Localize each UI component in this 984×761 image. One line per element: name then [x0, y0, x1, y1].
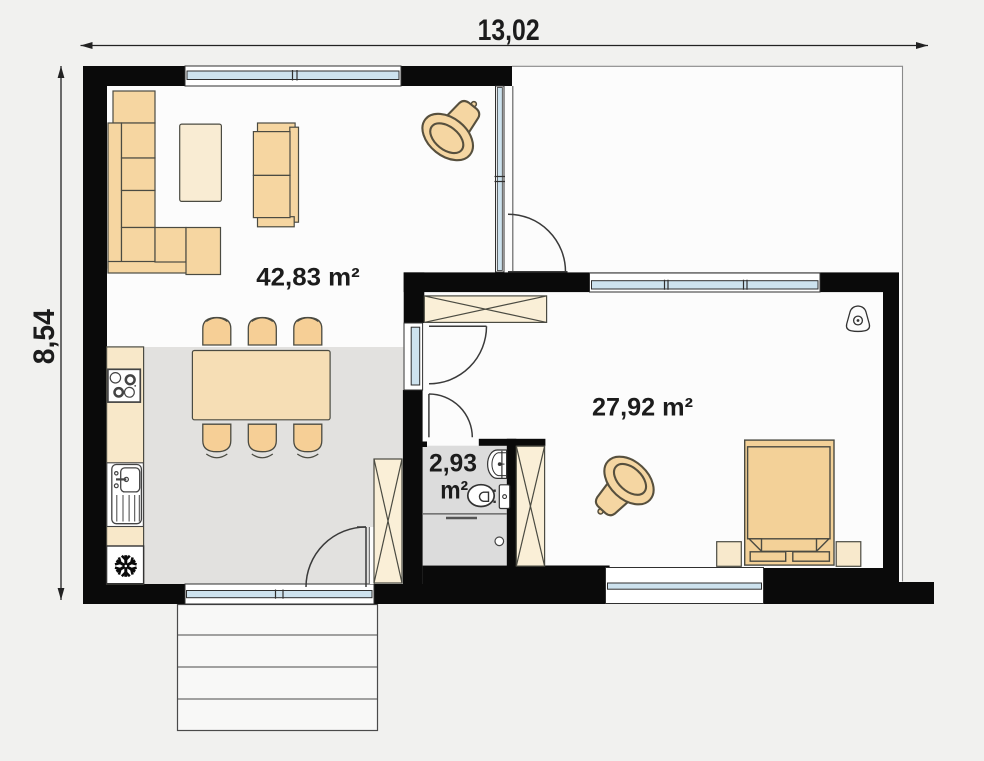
svg-text:m²: m² — [440, 478, 468, 505]
svg-text:42,83 m²: 42,83 m² — [256, 264, 360, 292]
svg-text:8,54: 8,54 — [28, 309, 61, 364]
svg-text:2,93: 2,93 — [429, 451, 477, 478]
svg-text:27,92 m²: 27,92 m² — [592, 394, 693, 422]
svg-text:13,02: 13,02 — [478, 14, 540, 47]
